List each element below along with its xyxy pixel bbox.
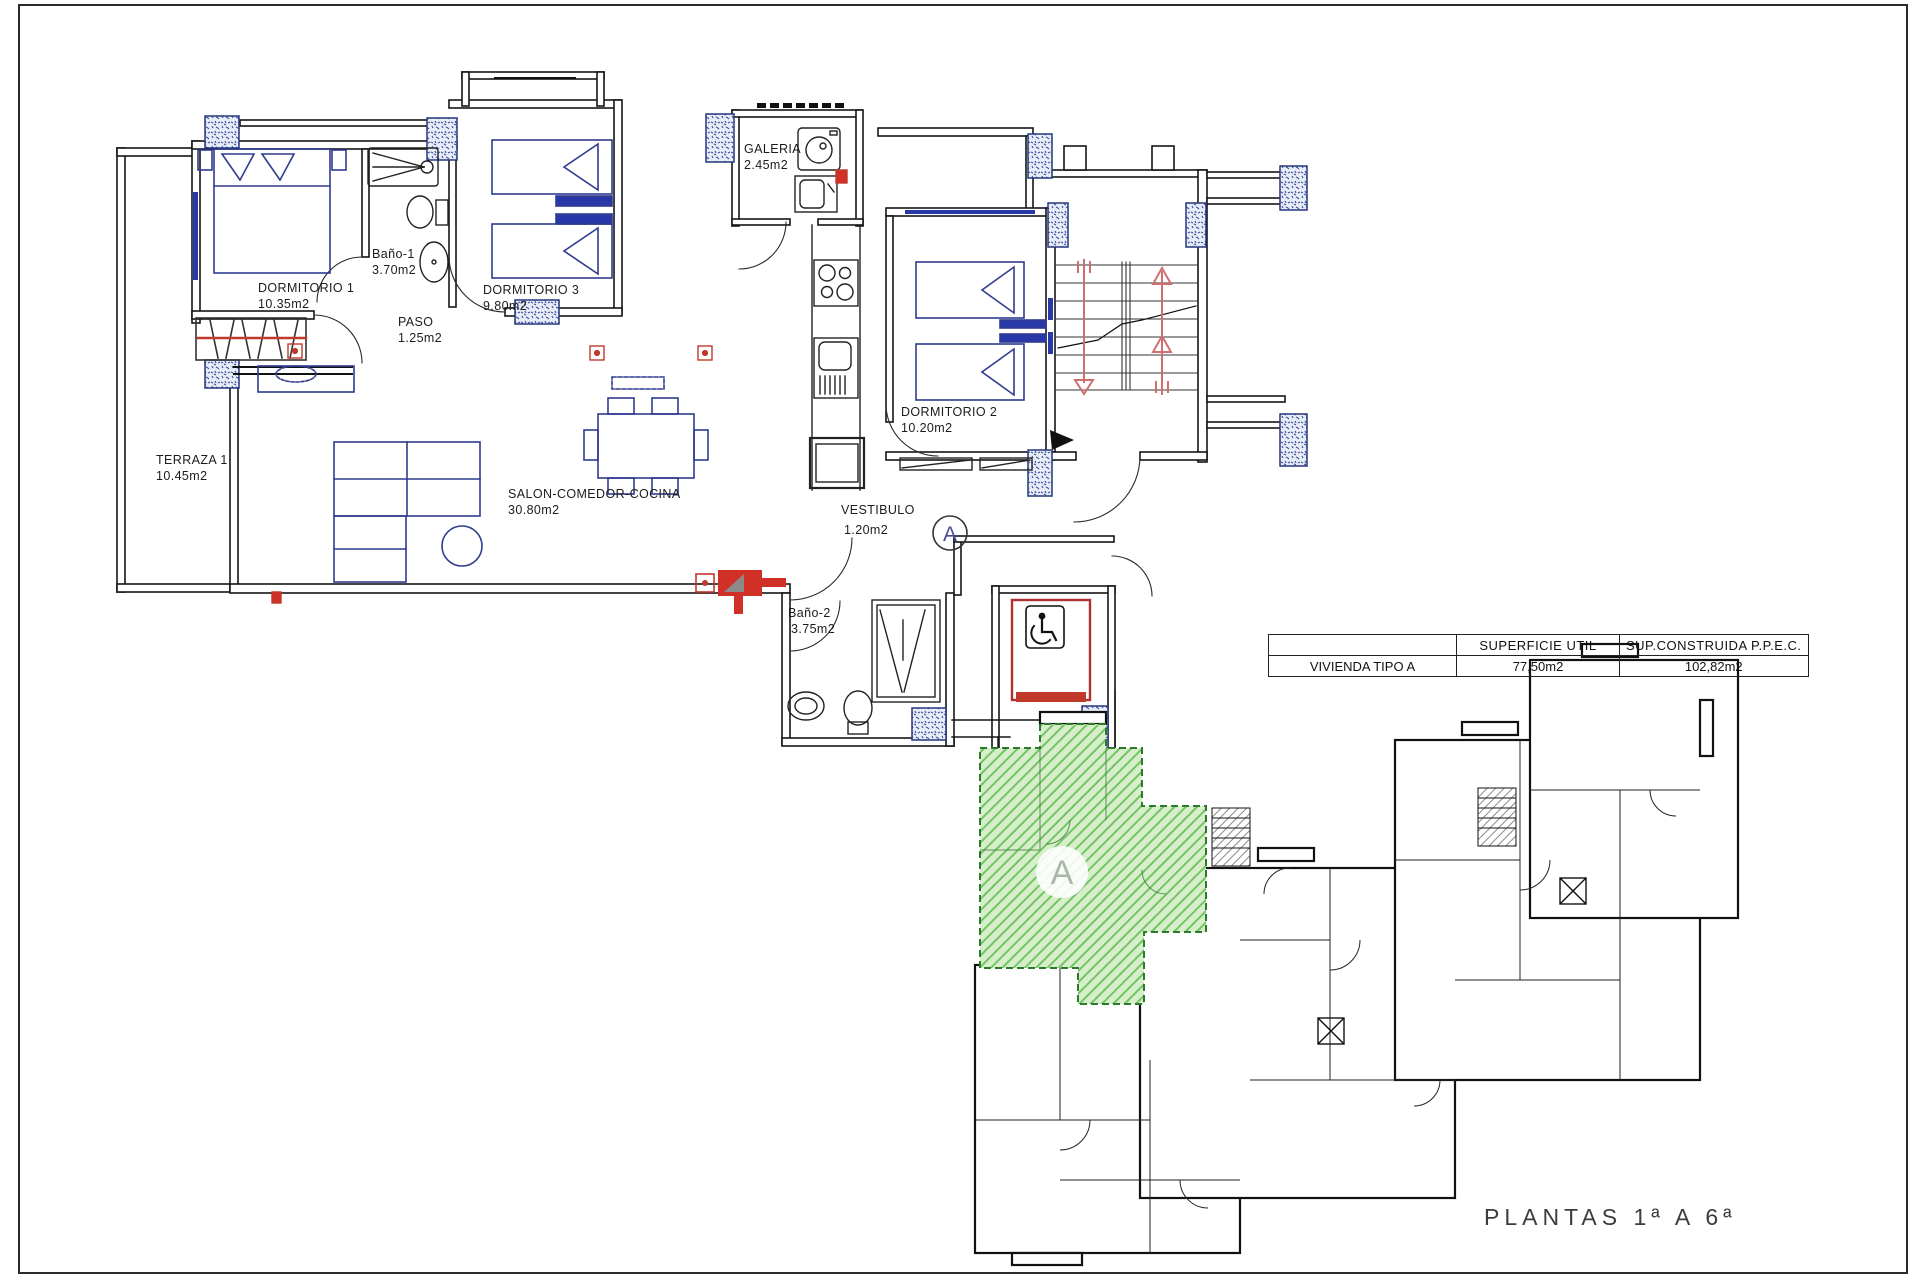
kitchen-sink-icon bbox=[814, 338, 858, 398]
label-dormitorio-1: DORMITORIO 1 bbox=[258, 281, 354, 295]
summary-table-construida-value: 102,82m2 bbox=[1620, 656, 1809, 677]
bed-twin-icon bbox=[916, 262, 1046, 400]
toilet-icon bbox=[844, 691, 872, 734]
area-bano-2: 3.75m2 bbox=[791, 622, 835, 636]
label-bano-2: Baño-2 bbox=[788, 606, 831, 620]
vent-strip-icon bbox=[757, 103, 844, 108]
area-vestibulo: 1.20m2 bbox=[844, 523, 888, 537]
area-salon: 30.80m2 bbox=[508, 503, 559, 517]
summary-table-corner-cell bbox=[1269, 635, 1457, 656]
label-dormitorio-2: DORMITORIO 2 bbox=[901, 405, 997, 419]
sink-icon bbox=[420, 242, 448, 282]
key-plan-caption: PLANTAS 1ª A 6ª bbox=[1484, 1204, 1737, 1231]
label-bano-1: Baño-1 bbox=[372, 247, 415, 261]
main-floor-plan: A DORMITORIO 1 10.35m2 Baño-1 3.70m2 PAS… bbox=[117, 72, 1307, 835]
red-elements bbox=[272, 170, 847, 614]
summary-table-dwelling-type: VIVIENDA TIPO A bbox=[1269, 656, 1457, 677]
key-plan: A bbox=[975, 644, 1738, 1265]
wall-hatch-patches bbox=[205, 114, 1307, 754]
area-paso: 1.25m2 bbox=[398, 331, 442, 345]
walls bbox=[117, 72, 1287, 762]
area-dormitorio-3: 9.80m2 bbox=[483, 299, 527, 313]
washing-machine-icon bbox=[798, 128, 840, 170]
unit-a-marker: A bbox=[933, 516, 967, 550]
summary-table-data-row: VIVIENDA TIPO A 77,50m2 102,82m2 bbox=[1269, 656, 1809, 677]
drawing-sheet: A DORMITORIO 1 10.35m2 Baño-1 3.70m2 PAS… bbox=[0, 0, 1920, 1280]
sideboard-icon bbox=[258, 366, 354, 392]
label-paso: PASO bbox=[398, 315, 433, 329]
toilet-icon bbox=[407, 196, 448, 228]
summary-table-header-row: SUPERFICIE UTIL SUP.CONSTRUIDA P.P.E.C. bbox=[1269, 635, 1809, 656]
wardrobe-icon bbox=[196, 318, 306, 360]
key-plan-a-letter: A bbox=[1051, 854, 1074, 892]
wheelchair-icon bbox=[1026, 606, 1064, 648]
sink-icon bbox=[788, 692, 824, 720]
riser-markers bbox=[272, 170, 847, 603]
label-vestibulo: VESTIBULO bbox=[841, 503, 915, 517]
tv-bench-icon bbox=[612, 377, 664, 389]
summary-table-header-construida: SUP.CONSTRUIDA P.P.E.C. bbox=[1620, 635, 1809, 656]
area-dormitorio-1: 10.35m2 bbox=[258, 297, 309, 311]
label-galeria: GALERIA bbox=[744, 142, 801, 156]
elevator-icon bbox=[1012, 600, 1090, 702]
bed-twin-icon bbox=[492, 140, 612, 278]
label-salon: SALON-COMEDOR-COCINA bbox=[508, 487, 681, 501]
summary-table-util-value: 77,50m2 bbox=[1457, 656, 1620, 677]
unit-a-letter: A bbox=[943, 523, 957, 546]
laundry-sink-icon bbox=[795, 176, 837, 212]
kitchen-counter bbox=[810, 225, 864, 490]
summary-table-header-util: SUPERFICIE UTIL bbox=[1457, 635, 1620, 656]
area-galeria: 2.45m2 bbox=[744, 158, 788, 172]
shower-icon bbox=[872, 600, 940, 702]
staircase-icon bbox=[1055, 260, 1198, 394]
label-terraza-1: TERRAZA 1 bbox=[156, 453, 228, 467]
dining-table-icon bbox=[584, 398, 708, 494]
bed-double-icon bbox=[198, 149, 346, 273]
area-dormitorio-2: 10.20m2 bbox=[901, 421, 952, 435]
entry-arrow-icon bbox=[1050, 430, 1074, 450]
area-bano-1: 3.70m2 bbox=[372, 263, 416, 277]
area-terraza-1: 10.45m2 bbox=[156, 469, 207, 483]
stair-arrows bbox=[1075, 260, 1171, 394]
hob-icon bbox=[814, 260, 858, 306]
label-dormitorio-3: DORMITORIO 3 bbox=[483, 283, 579, 297]
fridge-icon bbox=[810, 438, 864, 488]
sofa-icon bbox=[334, 442, 482, 582]
summary-table: SUPERFICIE UTIL SUP.CONSTRUIDA P.P.E.C. … bbox=[1268, 634, 1809, 677]
